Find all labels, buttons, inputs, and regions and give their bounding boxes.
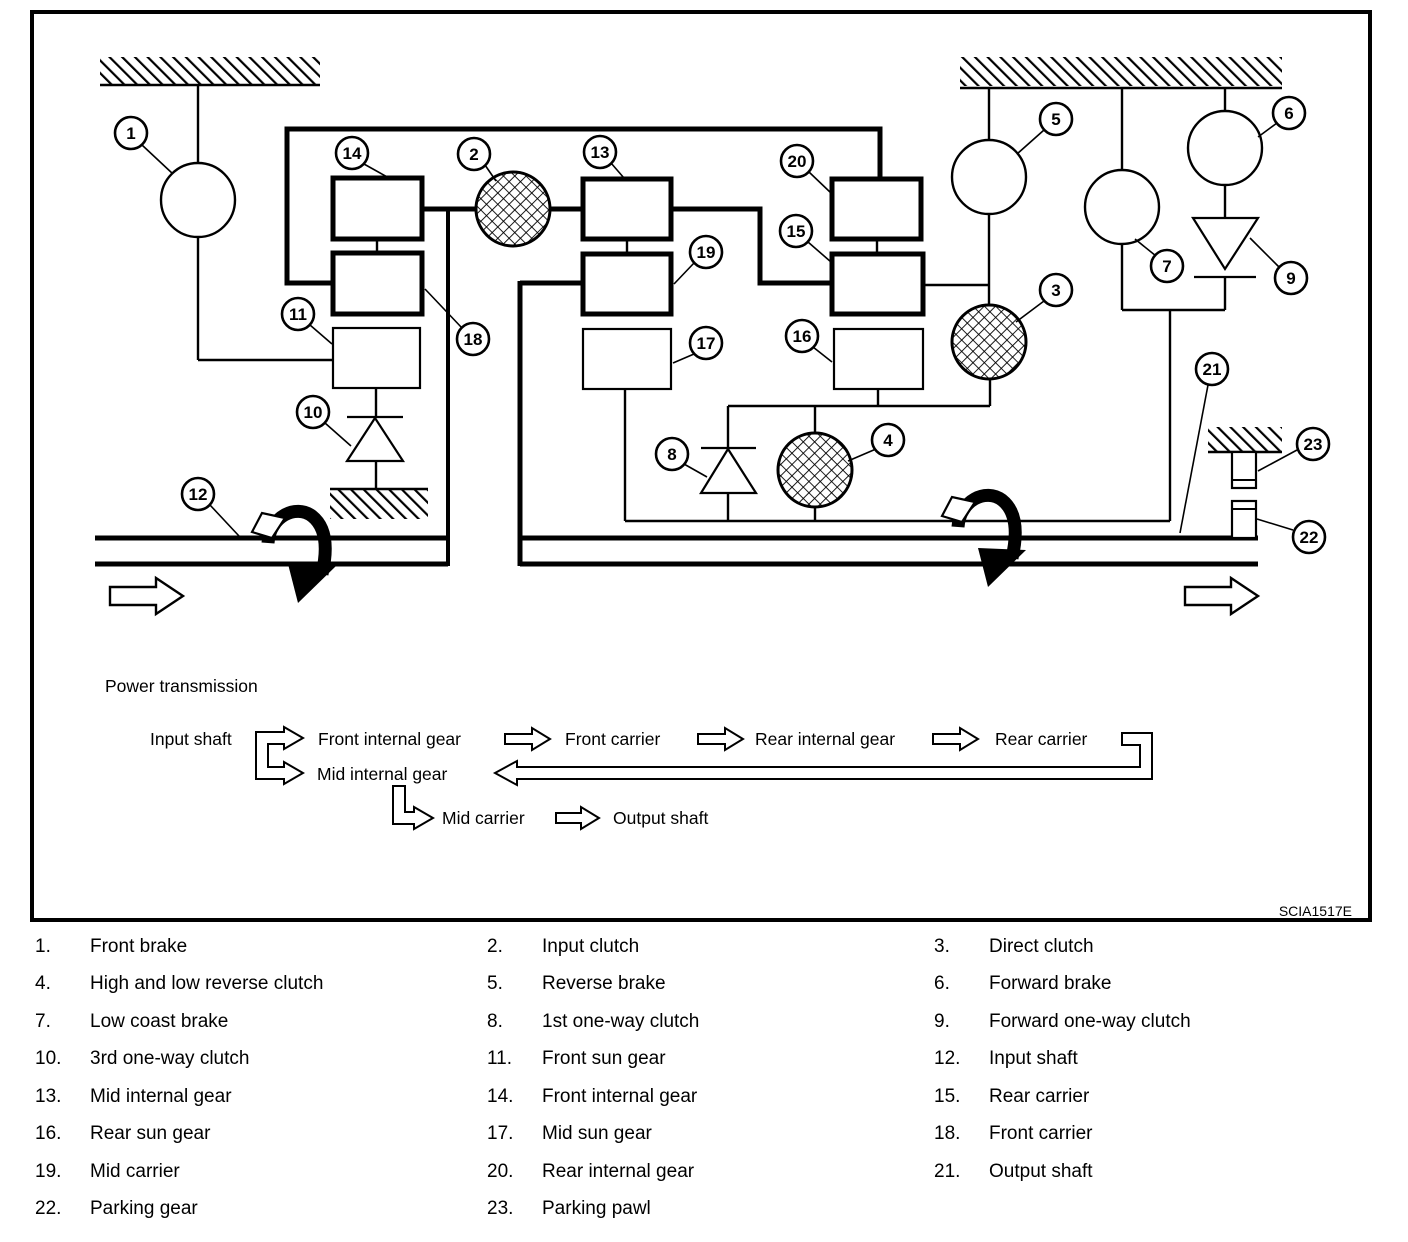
input-clutch-circle — [476, 172, 550, 246]
flow-arrow-4 — [556, 807, 599, 829]
parking-gear-rect — [1232, 501, 1256, 538]
legend-item-11: 11.Front sun gear — [487, 1041, 934, 1079]
legend-item-23: 23.Parking pawl — [487, 1191, 934, 1229]
callout-16: 16 — [786, 320, 832, 362]
output-shaft-rotation-arrow — [942, 495, 1026, 587]
callout-20: 20 — [781, 145, 831, 193]
legend-item-3: 3.Direct clutch — [934, 928, 1408, 966]
ground-hatch-3rd-owc — [330, 489, 428, 519]
legend-item-5: 5.Reverse brake — [487, 966, 934, 1004]
svg-text:17: 17 — [697, 334, 716, 353]
svg-text:8: 8 — [667, 445, 676, 464]
output-direction-arrow — [1185, 578, 1258, 614]
callout-8: 8 — [656, 438, 707, 477]
callout-22: 22 — [1257, 519, 1325, 553]
callout-5: 5 — [1017, 103, 1072, 154]
front-sun-gear-box — [333, 328, 420, 388]
direct-clutch-circle — [952, 305, 1026, 379]
flow-front-internal-gear-label: Front internal gear — [318, 729, 461, 749]
flow-mid-carrier-label: Mid carrier — [442, 808, 525, 828]
legend-item-16: 16.Rear sun gear — [35, 1116, 487, 1154]
callout-3: 3 — [1016, 274, 1072, 322]
legend-item-2: 2.Input clutch — [487, 928, 934, 966]
svg-text:1: 1 — [126, 124, 135, 143]
callout-14: 14 — [336, 137, 389, 178]
flow-mid-internal-gear-label: Mid internal gear — [317, 764, 448, 784]
svg-text:13: 13 — [591, 143, 610, 162]
mid-sun-gear-box — [583, 329, 671, 389]
legend-item-1: 1.Front brake — [35, 928, 487, 966]
legend-item-12: 12.Input shaft — [934, 1041, 1408, 1079]
flow-branch-connector — [256, 727, 303, 784]
flow-down-connector — [393, 786, 433, 829]
legend-item-9: 9.Forward one-way clutch — [934, 1003, 1408, 1041]
callout-9: 9 — [1250, 238, 1307, 294]
flow-arrow-3 — [933, 728, 978, 750]
legend-item-6: 6.Forward brake — [934, 966, 1408, 1004]
svg-text:21: 21 — [1203, 360, 1222, 379]
transmission-diagram-page: 1 2 3 4 5 6 7 8 9 10 — [0, 0, 1408, 1242]
callout-1: 1 — [115, 117, 173, 174]
legend-item-8: 8.1st one-way clutch — [487, 1003, 934, 1041]
flow-arrow-2 — [698, 728, 743, 750]
svg-text:15: 15 — [787, 222, 806, 241]
svg-text:10: 10 — [304, 403, 323, 422]
callout-10: 10 — [297, 396, 351, 446]
svg-text:4: 4 — [883, 431, 893, 450]
ground-hatch-rear — [960, 57, 1282, 88]
legend-item-13: 13.Mid internal gear — [35, 1078, 487, 1116]
legend-item-4: 4.High and low reverse clutch — [35, 966, 487, 1004]
legend-item-10: 10.3rd one-way clutch — [35, 1041, 487, 1079]
high-low-reverse-clutch-circle — [778, 433, 852, 507]
legend-item-17: 17.Mid sun gear — [487, 1116, 934, 1154]
svg-text:14: 14 — [343, 144, 362, 163]
flow-rear-internal-gear-label: Rear internal gear — [755, 729, 895, 749]
legend-item-14: 14.Front internal gear — [487, 1078, 934, 1116]
callout-15: 15 — [780, 215, 831, 262]
callout-7: 7 — [1135, 239, 1183, 282]
rear-internal-gear-box — [832, 179, 921, 239]
legend-item-21: 21.Output shaft — [934, 1153, 1408, 1191]
callout-12: 12 — [182, 478, 239, 536]
legend-item-7: 7.Low coast brake — [35, 1003, 487, 1041]
svg-text:23: 23 — [1304, 435, 1323, 454]
mid-internal-gear-box — [583, 179, 671, 239]
parking-pawl-rect — [1232, 452, 1256, 488]
svg-text:16: 16 — [793, 327, 812, 346]
svg-text:3: 3 — [1051, 281, 1060, 300]
callout-2: 2 — [458, 138, 496, 181]
legend-item-20: 20.Rear internal gear — [487, 1153, 934, 1191]
svg-text:22: 22 — [1300, 528, 1319, 547]
power-flow-title: Power transmission — [105, 676, 258, 696]
flow-front-carrier-label: Front carrier — [565, 729, 660, 749]
figure-code: SCIA1517E — [1279, 903, 1352, 919]
svg-text:7: 7 — [1162, 257, 1171, 276]
forward-brake-circle — [1188, 111, 1262, 185]
flow-input-shaft-label: Input shaft — [150, 729, 232, 749]
first-one-way-clutch-triangle — [701, 448, 756, 493]
input-shaft-rotation-arrow — [252, 511, 336, 603]
legend: 1.Front brake 2.Input clutch 3.Direct cl… — [0, 928, 1408, 1228]
callout-13: 13 — [584, 136, 624, 178]
rear-carrier-box — [832, 254, 923, 314]
svg-text:6: 6 — [1284, 104, 1293, 123]
callout-18: 18 — [425, 289, 489, 355]
ground-hatch-front — [100, 57, 320, 85]
flow-rear-carrier-label: Rear carrier — [995, 729, 1088, 749]
callout-17: 17 — [673, 327, 722, 363]
third-one-way-clutch-triangle — [347, 417, 403, 461]
callout-19: 19 — [674, 236, 722, 284]
legend-item-22: 22.Parking gear — [35, 1191, 487, 1229]
legend-item-19: 19.Mid carrier — [35, 1153, 487, 1191]
callout-11: 11 — [282, 298, 332, 344]
svg-text:18: 18 — [464, 330, 483, 349]
svg-text:2: 2 — [469, 145, 478, 164]
front-carrier-box — [333, 253, 422, 314]
svg-text:11: 11 — [289, 305, 307, 324]
flow-arrow-1 — [505, 728, 550, 750]
callout-6: 6 — [1258, 97, 1305, 137]
svg-text:20: 20 — [788, 152, 807, 171]
forward-one-way-clutch-triangle — [1193, 218, 1258, 277]
reverse-brake-circle — [952, 140, 1026, 214]
rear-sun-gear-box — [834, 329, 923, 389]
svg-text:5: 5 — [1051, 110, 1060, 129]
ground-hatch-parking-pawl — [1208, 427, 1282, 452]
svg-text:12: 12 — [189, 485, 208, 504]
power-train-schematic: 1 2 3 4 5 6 7 8 9 10 — [0, 0, 1408, 928]
front-internal-gear-box — [333, 178, 422, 239]
svg-text:9: 9 — [1286, 269, 1295, 288]
legend-item-15: 15.Rear carrier — [934, 1078, 1408, 1116]
low-coast-brake-circle — [1085, 170, 1159, 244]
output-shaft-lines — [520, 538, 1258, 564]
legend-item-18: 18.Front carrier — [934, 1116, 1408, 1154]
svg-text:19: 19 — [697, 243, 716, 262]
callout-4: 4 — [848, 424, 904, 461]
input-direction-arrow — [110, 578, 183, 614]
flow-output-shaft-label: Output shaft — [613, 808, 708, 828]
mid-carrier-box — [583, 254, 671, 314]
